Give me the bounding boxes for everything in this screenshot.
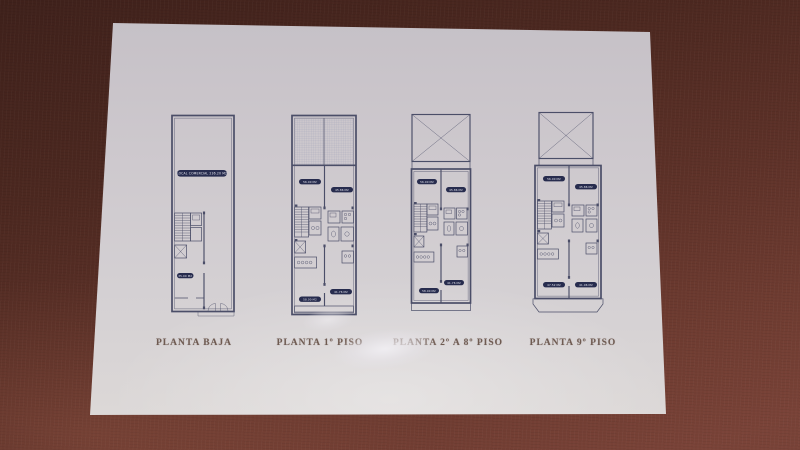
area-badge: 45.86 M2 [331,187,353,192]
area-badge: 45.86 M2 [446,187,466,192]
area-badge: 45.86 M2 [575,184,597,189]
area-badge: 58.00 M2 [419,288,439,293]
photo-background: LOCAL COMERCIAL 236.20 M2 35.00 M2 [0,0,800,450]
svg-text:45.86 M2: 45.86 M2 [335,188,349,192]
bathroom-kitchen-core [537,201,597,259]
area-badge: 56.00 M2 [543,176,565,181]
area-badge: 56.00 M2 [299,179,321,184]
roof-terrace-hatch [292,118,356,165]
floor-plan-planta-1-piso: 56.00 M2 45.86 M2 41.76 M2 58.00 M2 [288,113,360,319]
terrace-hatch [533,299,603,312]
area-badge: 41.76 M2 [330,289,352,294]
plan-title-planta-9-piso: PLANTA 9º PISO [488,338,658,348]
interior-walls [175,212,206,310]
stairs [414,204,427,232]
stairs [175,213,191,241]
stairs [537,201,551,229]
floor-plan-planta-baja: LOCAL COMERCIAL 236.20 M2 35.00 M2 [168,113,238,319]
area-badge: LOCAL COMERCIAL 236.20 M2 [177,170,227,177]
svg-text:45.86 M2: 45.86 M2 [579,185,593,189]
floor-plan-planta-2-a-8-piso: 56.00 M2 45.86 M2 41.76 M2 58.00 M2 [408,112,474,316]
stairs [295,207,309,237]
svg-text:58.00 M2: 58.00 M2 [303,297,317,301]
camera-glare [312,315,457,384]
area-badge: 56.00 M2 [417,179,437,184]
area-badge: 41.76 M2 [444,280,464,285]
svg-text:56.00 M2: 56.00 M2 [547,177,561,181]
balcony-hatch [412,303,471,311]
local-comercial-label: LOCAL COMERCIAL 236.20 M2 [177,172,227,176]
svg-text:41.96 M2: 41.96 M2 [579,283,593,287]
area-badge: 58.00 M2 [299,297,321,302]
floor-plan-planta-9-piso: 56.00 M2 45.86 M2 47.52 M2 41.96 M2 [531,110,605,316]
area-badge: 35.00 M2 [177,273,194,278]
svg-text:56.00 M2: 56.00 M2 [420,180,434,184]
balcony-rail-hatch [412,162,470,170]
svg-text:58.00 M2: 58.00 M2 [422,289,436,293]
svg-text:56.00 M2: 56.00 M2 [303,180,317,184]
void-above [539,113,593,159]
paper-sheet: LOCAL COMERCIAL 236.20 M2 35.00 M2 [90,23,666,415]
svg-text:47.52 M2: 47.52 M2 [547,283,561,287]
area-badge: 41.96 M2 [575,282,597,287]
interior-walls [295,165,354,306]
svg-text:45.86 M2: 45.86 M2 [449,188,463,192]
svg-text:41.76 M2: 41.76 M2 [334,290,348,294]
svg-text:41.76 M2: 41.76 M2 [447,281,461,285]
void-above [412,115,470,162]
entry-doors [198,304,234,317]
balcony-rail-hatch [539,159,593,166]
area-badge: 47.52 M2 [543,282,565,287]
area-label: 35.00 M2 [178,274,192,278]
